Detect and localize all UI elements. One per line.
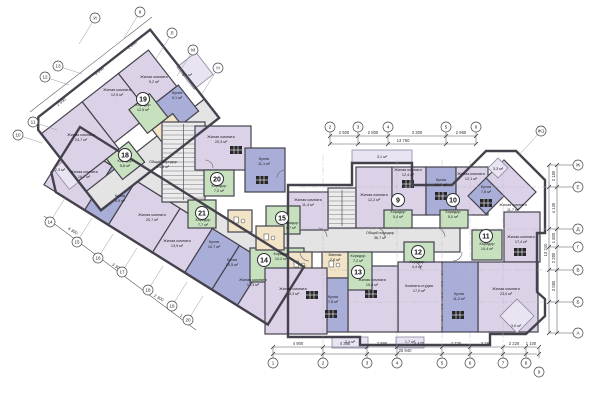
dimension-value: 4 130 xyxy=(551,202,556,213)
axis-bubble-label: 16 xyxy=(95,256,101,261)
room-area-label: 16,3 м² xyxy=(287,292,300,296)
axis-bubble-label: 11 xyxy=(31,120,36,125)
room-area-label: 13,9 м² xyxy=(171,244,184,248)
room-name-label: Кухня xyxy=(328,295,338,299)
common-corridor-label: Общий коридор xyxy=(366,231,394,235)
room-area-label: 11,4 м² xyxy=(302,203,315,207)
dimension-value: 2 800 xyxy=(368,130,379,135)
balcony-area-label: 3,1 м² xyxy=(377,155,388,159)
axis-bubble-label: Е xyxy=(576,185,579,190)
room-area-label: 10,2 м² xyxy=(435,183,448,187)
apartment-number: 12 xyxy=(414,249,422,256)
room-area-label: 5,8 м² xyxy=(120,164,131,168)
axis-bubble-label: 15 xyxy=(74,240,80,245)
room-area-label: 12,1 м² xyxy=(465,177,478,181)
dimension-value: 4 470 xyxy=(414,341,425,346)
room-area-label: 20,3 м² xyxy=(215,140,228,144)
room-name-label: Жилая комната xyxy=(163,239,191,243)
room-name-label: Жилая комната xyxy=(67,133,95,137)
room-name-label: Жилая комната xyxy=(294,198,322,202)
room-area-label: 15,8 м² xyxy=(366,283,379,287)
axis-bubble-label: 19 xyxy=(169,304,175,309)
room-name-label: Жилая комната xyxy=(457,172,485,176)
room-area-label: 24,7 м² xyxy=(75,138,88,142)
room-кухня-8 xyxy=(426,167,456,215)
room-area-label: 12,3 м² xyxy=(247,283,260,287)
dimension-value: 1 800 xyxy=(551,232,556,243)
dimension-value: 2 960 xyxy=(456,130,467,135)
axis-bubble-label: 3 xyxy=(366,361,369,366)
room-area-label: 11,7 м² xyxy=(507,208,520,212)
room-area-label: 4,7 м² xyxy=(286,226,297,230)
axis-bubble-label: 9 xyxy=(538,370,541,375)
dimension-value: 3 300 xyxy=(412,130,423,135)
balcony-area-label: 3,1 м² xyxy=(182,73,193,77)
dimension-value: 25 940 xyxy=(399,348,412,353)
axis-bubble-label: Н xyxy=(216,66,219,71)
apartment-number: 11 xyxy=(482,233,490,240)
axis-bubble-label: 2 xyxy=(329,125,332,130)
dimension-value: 4 360 xyxy=(340,341,351,346)
room-name-label: Коридор xyxy=(351,254,366,258)
dimension-value: 2 890 xyxy=(377,341,388,346)
axis-bubble-label: 4 xyxy=(396,361,399,366)
axis-bubble-label: 12 xyxy=(42,75,48,80)
room-area-label: 12,2 м² xyxy=(368,198,381,202)
dimension-value: 2 720 xyxy=(451,341,462,346)
apartment-number: 20 xyxy=(213,176,221,183)
room-name-label: Коридор xyxy=(274,252,289,256)
common-corridor-label: Общий коридор xyxy=(149,160,177,164)
sanitary-fixture-icon xyxy=(271,236,275,240)
axis-bubble-label: 7 xyxy=(502,361,505,366)
axis-bubble-label: 17 xyxy=(119,270,125,275)
room-name-label: Кухня xyxy=(172,91,182,95)
dimension-value: 2 500 xyxy=(339,130,350,135)
apartment-number: 19 xyxy=(139,96,147,103)
room-area-label: 7,0 м² xyxy=(214,189,225,193)
room-area-label: 7,6 м² xyxy=(481,190,492,194)
floor-plan-drawing: Жилая комната16,7 м²Кухня6,9 м²Жилая ком… xyxy=(0,0,600,400)
room-name-label: Коридор xyxy=(446,210,461,214)
axis-bubble-label: 5 xyxy=(441,361,444,366)
room-name-label: Кухня xyxy=(259,157,269,161)
sanitary-fixture-icon xyxy=(234,217,239,223)
room-area-label: 10,7 м² xyxy=(208,245,221,249)
room-name-label: Жилая комната xyxy=(394,168,422,172)
room-кухня-4 xyxy=(245,148,285,192)
dimension-value: 2 500 xyxy=(55,96,67,107)
room-name-label: Кухня xyxy=(209,240,219,244)
room-area-label: 10,5 м² xyxy=(226,263,239,267)
balcony-area-label: 3,3 м² xyxy=(493,167,504,171)
room-area-label: 10,2 м² xyxy=(275,257,288,261)
apartment-number: 15 xyxy=(278,215,286,222)
axis-bubble-label: 6 xyxy=(475,125,478,130)
room-area-label: 7,7 м² xyxy=(198,223,209,227)
room-name-label: Кухня xyxy=(481,185,491,189)
room-name-label: Кухня xyxy=(454,292,464,296)
room-name-label: Кухня xyxy=(115,194,125,198)
dimension-value: 1 100 xyxy=(526,341,537,346)
floor-plan-page: Жилая комната16,7 м²Кухня6,9 м²Жилая ком… xyxy=(0,0,600,400)
room-name-label: Жилая комната xyxy=(360,193,388,197)
axis-bubble-label: 14 xyxy=(47,220,53,225)
room-area-label: 11,1 м² xyxy=(258,162,271,166)
apartment-number: 14 xyxy=(260,257,268,264)
room-name-label: Жилая комната xyxy=(103,88,131,92)
room-name-label: Комната-студия xyxy=(405,284,433,288)
balcony-area-label: 3,0 м² xyxy=(511,324,522,328)
axis-bubble-label: 3 xyxy=(357,125,360,130)
sanitary-fixture-icon xyxy=(264,234,269,240)
axis-bubble-label: 8 xyxy=(525,361,528,366)
apartment-number: 10 xyxy=(449,197,457,204)
room-name-label: Жилая комната xyxy=(279,287,307,291)
common-corridor-area: 24,6 м² xyxy=(157,165,170,169)
dimension-value: 3 280 xyxy=(481,341,492,346)
sanitary-fixture-icon xyxy=(336,263,340,267)
room-name-label: Жилая комната xyxy=(239,278,267,282)
room-area-label: 12,5 м² xyxy=(111,93,124,97)
room-area-label: 2,6 м² xyxy=(330,258,341,262)
room-area-label: 10,4 м² xyxy=(481,247,494,251)
room-area-label: 7,2 м² xyxy=(353,259,364,263)
room-жилая-комната-3 xyxy=(195,126,251,170)
room-area-label: 12,4 м² xyxy=(402,173,415,177)
room-комната-студия-20 xyxy=(398,262,442,332)
common-corridor-area: 36,7 м² xyxy=(374,236,387,240)
room-name-label: Жилая комната xyxy=(358,278,386,282)
room-name-label: Жилая комната xyxy=(507,235,535,239)
room-name-label: Жилая комната xyxy=(138,213,166,217)
room-area-label: 11,2 м² xyxy=(453,297,466,301)
axis-bubble-label: Ж1 xyxy=(538,129,545,134)
dimension-value: 2 180 xyxy=(551,170,556,181)
room-area-label: 4,4 м² xyxy=(412,265,423,269)
room-area-label: 12,5 м² xyxy=(137,108,150,112)
axis-bubble-label: Л xyxy=(170,31,173,36)
room-area-label: 9,2 м² xyxy=(149,80,160,84)
room-area-label: 23,0 м² xyxy=(500,292,513,296)
apartment-number: 18 xyxy=(121,152,129,159)
room-name-label: Коридор xyxy=(410,260,425,264)
door-swing-icon xyxy=(453,252,462,261)
axis-bubble-label: В xyxy=(576,268,579,273)
dimension-value: 13 240 xyxy=(543,243,548,256)
room-area-label: 17,4 м² xyxy=(515,240,528,244)
dimension-value: 2 220 xyxy=(509,341,520,346)
dimension-value: 3 080 xyxy=(551,280,556,291)
dimension-value: 13 760 xyxy=(397,138,410,143)
axis-bubble-label: К xyxy=(139,10,142,15)
room-name-label: Жилая комната xyxy=(492,287,520,291)
room-area-label: 7,8 м² xyxy=(328,300,339,304)
axis-bubble-label: И xyxy=(93,16,96,21)
room-area-label: 5,4 м² xyxy=(393,215,404,219)
room-area-label: 6,9 м² xyxy=(115,199,126,203)
axis-bubble-label: Б xyxy=(576,300,579,305)
room-area-label: 20,7 м² xyxy=(146,218,159,222)
room-name-label: Жилая комната xyxy=(499,203,527,207)
axis-bubble-label: 2 xyxy=(322,361,325,366)
room-name-label: Жилая комната xyxy=(207,135,235,139)
dimension-value: 4 900 xyxy=(293,341,304,346)
room-area-label: 17,0 м² xyxy=(413,289,426,293)
room-area-label: 5,0 м² xyxy=(448,215,459,219)
axis-bubble-label: 18 xyxy=(145,288,151,293)
room-name-label: Ванная xyxy=(328,253,341,257)
axis-bubble-label: 1 xyxy=(272,361,275,366)
room-name-label: Кухня xyxy=(227,258,237,262)
dimension-value: 2 280 xyxy=(551,252,556,263)
apartment-number: 9 xyxy=(396,197,400,204)
axis-bubble-label: 5 xyxy=(445,125,448,130)
room-area-label: 16,7 м² xyxy=(78,175,91,179)
room-name-label: Жилая комната xyxy=(140,75,168,79)
axis-bubble-label: М xyxy=(191,48,195,53)
axis-bubble-label: 13 xyxy=(55,64,61,69)
apartment-number: 13 xyxy=(354,269,362,276)
axis-bubble-label: 10 xyxy=(15,133,21,138)
balcony-area-label: 2,3 м² xyxy=(55,168,66,172)
room-name-label: Жилая комната xyxy=(70,170,98,174)
axis-bubble-label: 6 xyxy=(469,361,472,366)
axis-bubble-label: 4 xyxy=(387,125,390,130)
sanitary-fixture-icon xyxy=(241,219,245,223)
dimension-value: 2 300 xyxy=(153,293,165,303)
room-name-label: Кухня xyxy=(436,178,446,182)
room-name-label: Коридор xyxy=(391,210,406,214)
room-area-label: 9,1 м² xyxy=(172,96,183,100)
axis-bubble-label: 20 xyxy=(185,318,191,323)
apartment-number: 21 xyxy=(198,210,206,217)
